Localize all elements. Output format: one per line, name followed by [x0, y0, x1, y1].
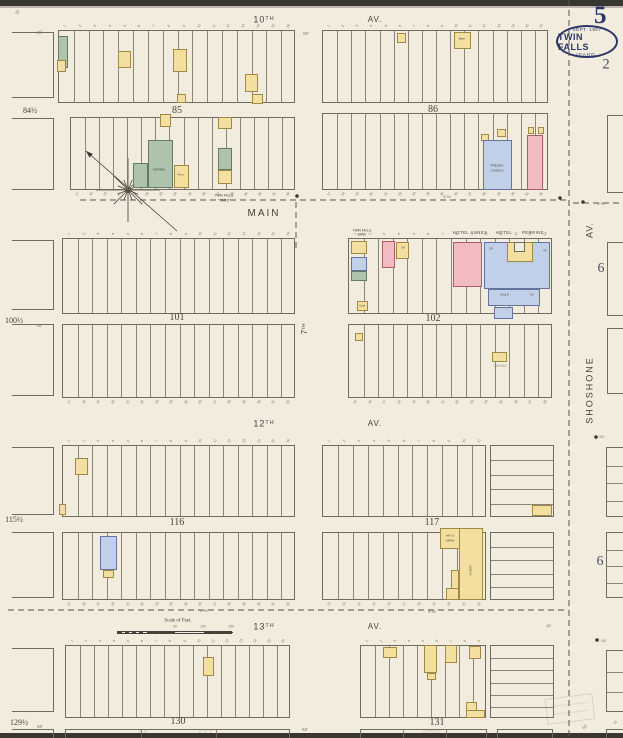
lot-line	[378, 325, 379, 397]
hydrant-dot	[295, 194, 299, 198]
bldg-label-hay: HAY &	[446, 535, 454, 538]
lot-number: 1	[327, 24, 331, 28]
cannery	[133, 163, 148, 188]
scale-bar-segment	[132, 632, 136, 633]
lot-line	[249, 646, 250, 717]
scan-edge-top-shadow	[0, 6, 623, 8]
hydrant-dot	[594, 435, 598, 439]
lot-number: 16	[386, 601, 392, 606]
stamp-city: TWIN FALLS	[558, 32, 616, 52]
lot-line	[121, 533, 122, 599]
right-partial-row1	[607, 115, 623, 193]
street-label-13th-av: AV.	[368, 623, 383, 631]
lot-number: 11	[212, 231, 217, 236]
lot-number: 7	[417, 439, 421, 443]
lot-number: 14	[252, 638, 258, 643]
lot-line	[180, 239, 181, 313]
lot-number: 2	[82, 232, 86, 236]
lot-line	[193, 646, 194, 717]
lot-number: 26	[453, 191, 459, 196]
lot-line	[136, 646, 137, 717]
lot-line	[491, 475, 553, 476]
lot-number: 7	[152, 24, 156, 28]
lot-line	[121, 446, 122, 516]
building	[466, 710, 485, 718]
scale-150: 150	[228, 625, 234, 629]
lot-line	[337, 114, 338, 189]
scale-label: Scale of Feet.	[164, 619, 191, 624]
lot-number: 32	[538, 191, 544, 196]
lot-number: 8	[169, 232, 173, 236]
lot-line	[607, 583, 623, 584]
lot-number: 31	[271, 191, 277, 196]
lot-line	[491, 707, 553, 708]
lot-number: 3	[96, 232, 100, 236]
bldg-label-dining: Din'g R.	[500, 295, 509, 298]
furniture-store	[174, 165, 189, 188]
lot-line	[337, 31, 338, 102]
lot-number: 17	[401, 601, 407, 606]
lot-number: 5	[387, 439, 391, 443]
lot-line	[375, 646, 376, 717]
lot-number: 4	[369, 24, 373, 28]
lot-number: 16	[285, 23, 291, 28]
lot-number: 6	[402, 439, 406, 443]
right-partial-row3b	[606, 532, 623, 598]
lot-line	[509, 325, 510, 397]
block-115h-upper-lots	[12, 447, 54, 515]
lot-number: 27	[212, 601, 218, 606]
lot-number: 7	[441, 232, 445, 236]
building	[177, 94, 186, 103]
bottom-strip-right	[606, 729, 623, 738]
lot-line	[403, 730, 404, 738]
lot-line	[450, 114, 451, 189]
lot-number: 22	[145, 191, 151, 196]
lot-number: 8	[167, 24, 171, 28]
lot-line	[422, 325, 423, 397]
building	[355, 333, 363, 341]
block-number-131: 131	[430, 718, 445, 728]
hotel-perrine-court	[514, 242, 525, 252]
lot-line	[446, 730, 447, 738]
block-100h-upper-lots	[12, 240, 54, 310]
lot-line	[607, 550, 623, 551]
lot-line	[163, 31, 164, 102]
water-main-label: 6''W	[428, 610, 436, 614]
lot-line	[394, 114, 395, 189]
bank-corner-building	[351, 271, 367, 281]
lot-line	[491, 460, 553, 461]
lot-number: 15	[266, 638, 272, 643]
hotel-annex	[453, 242, 482, 287]
lot-line	[491, 683, 553, 684]
lot-line	[192, 31, 193, 102]
lot-line	[223, 533, 224, 599]
block-84h-upper-lots	[12, 32, 54, 98]
lot-number: 18	[340, 191, 346, 196]
lot-number: 5	[421, 639, 425, 643]
lot-number: 24	[168, 601, 174, 606]
lot-line	[165, 239, 166, 313]
lot-number: 21	[131, 191, 137, 196]
lot-number: 14	[510, 23, 516, 28]
lot-number: 17	[67, 601, 73, 606]
lot-number: 2	[82, 439, 86, 443]
lot-line	[252, 239, 253, 313]
lot-number: 24	[425, 191, 431, 196]
lot-number: 8	[168, 639, 172, 643]
lot-line	[378, 239, 379, 313]
lot-number: 17	[67, 399, 73, 404]
lot-number: 18	[416, 601, 422, 606]
lot-line	[364, 325, 365, 397]
stamp-state: IDAHO.	[576, 52, 598, 57]
lot-number: 20	[116, 191, 122, 196]
lot-number: 18	[88, 191, 94, 196]
lot-number: 23	[469, 399, 475, 404]
lot-line	[457, 446, 458, 516]
lot-number: 6	[426, 232, 430, 236]
lot-number: 10	[196, 638, 202, 643]
lot-number: 10	[461, 438, 467, 443]
lot-number: 11	[468, 23, 473, 28]
lot-line	[478, 114, 479, 189]
lot-line	[422, 239, 423, 313]
faint-fragment: E X P	[199, 730, 213, 734]
bldg-label-times: TWIN FALLS	[215, 194, 234, 197]
lot-number: 23	[411, 191, 417, 196]
lot-number: 1	[70, 639, 74, 643]
lot-line	[535, 31, 536, 102]
lot-line	[281, 533, 282, 599]
block-number-117: 117	[425, 518, 440, 528]
lot-line	[417, 646, 418, 717]
lot-number: 26	[201, 191, 207, 196]
lot-number: 20	[425, 399, 431, 404]
lot-number: 22	[455, 399, 461, 404]
lot-number: 3	[382, 232, 386, 236]
lot-number: 28	[542, 399, 548, 404]
lot-number: 7	[449, 639, 453, 643]
lot-line	[238, 446, 239, 516]
lot-line	[165, 325, 166, 397]
lot-line	[164, 646, 165, 717]
block-86-lower-lots	[322, 113, 548, 190]
lot-line	[368, 446, 369, 516]
lot-line	[94, 646, 95, 717]
lot-line	[422, 114, 423, 189]
lot-line	[267, 446, 268, 516]
lot-number: 6	[397, 24, 401, 28]
lot-line	[180, 446, 181, 516]
lot-line	[223, 325, 224, 397]
lot-line	[103, 31, 104, 102]
lot-number: 6	[140, 439, 144, 443]
lot-line	[121, 239, 122, 313]
lot-line	[267, 533, 268, 599]
lot-number: 19	[431, 601, 437, 606]
lot-number: 4	[397, 232, 401, 236]
lot-number: 2	[368, 232, 372, 236]
lot-number: 10	[198, 231, 204, 236]
lot-line	[92, 533, 93, 599]
lot-number: 12	[482, 23, 488, 28]
barn	[454, 32, 471, 49]
lot-line	[493, 31, 494, 102]
lot-number: 29	[243, 191, 249, 196]
scale-bar-segment	[204, 632, 233, 633]
lot-line	[398, 533, 399, 599]
lot-number: 12	[226, 23, 232, 28]
lot-number: 32	[285, 601, 291, 606]
lot-line	[427, 533, 428, 599]
lot-number: 15	[371, 601, 377, 606]
lot-line	[209, 325, 210, 397]
scale-bar-segment	[118, 632, 122, 633]
lot-number: 32	[285, 191, 291, 196]
lot-line	[451, 325, 452, 397]
adjacent-sheet-6a: 6	[598, 262, 605, 276]
lot-number: 28	[227, 601, 233, 606]
lot-number: 21	[440, 399, 446, 404]
lot-number: 21	[461, 601, 467, 606]
bldg-label-off: Off	[489, 249, 492, 252]
lot-number: 17	[74, 191, 80, 196]
lot-number: 20	[110, 399, 116, 404]
hotel-laundry	[494, 307, 513, 319]
dim-60ft: 60'	[582, 724, 589, 730]
coal-shed	[492, 352, 507, 362]
block-number-101: 101	[170, 313, 185, 323]
lot-number: 25	[187, 191, 193, 196]
lot-number: 26	[198, 399, 204, 404]
lot-number: 14	[357, 601, 363, 606]
lot-number: 30	[510, 191, 516, 196]
lot-line	[412, 446, 413, 516]
lot-number: 1	[63, 24, 67, 28]
lot-line	[267, 239, 268, 313]
building	[538, 127, 544, 134]
lot-number: 30	[256, 399, 262, 404]
dim-31: 31	[613, 720, 618, 725]
lot-number: 18	[81, 399, 87, 404]
street-label-10th: 10TH	[253, 16, 274, 25]
lot-number: 1	[67, 439, 71, 443]
lot-line	[436, 239, 437, 313]
building	[245, 74, 258, 92]
lot-number: 29	[496, 191, 502, 196]
lot-line	[107, 239, 108, 313]
lot-line	[222, 31, 223, 102]
lot-line	[353, 533, 354, 599]
lot-number: 12	[513, 231, 519, 236]
hydrant-dot	[595, 638, 599, 642]
lot-line	[607, 501, 623, 502]
lot-line	[252, 446, 253, 516]
street-label-12th-sup: TH	[265, 420, 274, 426]
lot-line	[408, 31, 409, 102]
lot-number: 15	[524, 23, 530, 28]
block-116-upper-lots	[62, 445, 295, 517]
building	[397, 33, 406, 43]
lot-line	[422, 31, 423, 102]
block-100h-lower-lots	[12, 324, 54, 396]
lot-line	[252, 533, 253, 599]
lot-number: 6	[140, 232, 144, 236]
brick-building	[527, 135, 543, 190]
stable	[424, 645, 437, 673]
lot-line	[338, 446, 339, 516]
lot-line	[179, 646, 180, 717]
lot-number: 4	[108, 24, 112, 28]
lot-number: 21	[383, 191, 389, 196]
lot-number: 2	[342, 439, 346, 443]
lot-number: 16	[285, 438, 291, 443]
block-number-85: 85	[172, 106, 182, 116]
lot-line	[607, 692, 623, 693]
bottom-strip-131e	[497, 729, 553, 738]
lot-line	[491, 547, 553, 548]
bldg-label-church: CHURCH	[491, 170, 504, 173]
lot-number: 19	[96, 601, 102, 606]
lot-line	[507, 31, 508, 102]
lot-line	[99, 118, 100, 189]
building	[252, 94, 263, 104]
lot-line	[521, 114, 522, 189]
block-number-115h: 115½	[5, 516, 23, 524]
lot-number: 11	[476, 438, 481, 443]
lot-number: 15	[270, 231, 276, 236]
water-main-label: 6''W	[597, 202, 605, 206]
adjacent-sheet-6b: 6	[597, 555, 604, 569]
lot-number: 30	[257, 191, 263, 196]
scale-50: 50	[173, 625, 177, 629]
lot-number: 16	[538, 23, 544, 28]
lot-number: 31	[524, 191, 530, 196]
lot-number: 4	[111, 232, 115, 236]
lot-number: 9	[440, 24, 444, 28]
lot-line	[393, 325, 394, 397]
lot-line	[353, 446, 354, 516]
lot-number: 5	[126, 639, 130, 643]
lot-number: 24	[484, 399, 490, 404]
block-130-lots	[65, 645, 290, 718]
lot-number: 7	[412, 24, 416, 28]
twin-falls-times	[218, 170, 232, 184]
bottom-strip-left	[12, 729, 54, 738]
lot-line	[148, 31, 149, 102]
lot-number: 9	[182, 639, 186, 643]
lot-number: 14	[256, 231, 262, 236]
lot-number: 19	[96, 399, 102, 404]
block-number-129h: 129½	[10, 719, 28, 727]
lot-number: 4	[111, 439, 115, 443]
lot-number: 21	[125, 601, 131, 606]
bldg-label-coal-shed: Coal Shed	[493, 365, 506, 368]
lot-line	[207, 31, 208, 102]
lot-number: 6	[435, 639, 439, 643]
lot-line	[351, 114, 352, 189]
lot-number: 8	[432, 439, 436, 443]
lot-number: 12	[227, 438, 233, 443]
dim-60ft: 60'	[601, 639, 606, 643]
lot-number: 20	[446, 601, 452, 606]
scale-bar-segment	[139, 632, 143, 633]
lot-line	[133, 31, 134, 102]
lot-line	[380, 114, 381, 189]
lot-number: 17	[382, 399, 388, 404]
lot-number: 5	[122, 24, 126, 28]
building	[382, 241, 395, 268]
lot-line	[194, 446, 195, 516]
lot-line	[113, 118, 114, 189]
lot-number: 19	[411, 399, 417, 404]
lot-number: 29	[241, 399, 247, 404]
bldg-label-kitchen: Kit.	[530, 295, 534, 298]
lot-line	[252, 325, 253, 397]
sanborn-map-sheet: 5 SEPT. 1907 TWIN FALLS IDAHO. 123456789…	[0, 0, 623, 738]
bldg-label-twin-falls-bank: BANK	[358, 233, 367, 236]
publisher-stamp: SEPT. 1907 TWIN FALLS IDAHO.	[556, 25, 618, 58]
bldg-label-times: "TIMES"	[218, 199, 230, 202]
lot-line	[408, 114, 409, 189]
lot-number: 24	[168, 399, 174, 404]
lot-line	[92, 446, 93, 516]
block-115h-lower-lots	[12, 532, 54, 598]
lot-number: 22	[397, 191, 403, 196]
bank-corner-building	[351, 257, 367, 271]
lot-number: 15	[353, 399, 359, 404]
building	[532, 505, 552, 516]
lot-line	[524, 325, 525, 397]
lot-line	[451, 239, 452, 313]
lot-number: 19	[355, 191, 361, 196]
lot-line	[150, 325, 151, 397]
street-label-13th: 13TH	[253, 623, 274, 632]
lot-line	[136, 446, 137, 516]
lot-number: 5	[411, 232, 415, 236]
lot-line	[263, 646, 264, 717]
lot-line	[407, 325, 408, 397]
lot-line	[412, 533, 413, 599]
lot-number: 13	[342, 601, 348, 606]
lot-line	[127, 118, 128, 189]
lot-number: 8	[426, 24, 430, 28]
lot-number: 12	[327, 601, 333, 606]
dim-60ft: 60'	[302, 728, 308, 733]
lot-line	[491, 695, 553, 696]
dim-50ft: 50'	[15, 9, 21, 16]
lot-number: 18	[81, 601, 87, 606]
lot-line	[194, 239, 195, 313]
lot-line	[85, 118, 86, 189]
lot-line	[80, 646, 81, 717]
block-number-100h: 100½	[5, 317, 23, 325]
lot-number: 24	[173, 191, 179, 196]
lot-line	[78, 325, 79, 397]
lot-line	[436, 31, 437, 102]
lot-line	[150, 446, 151, 516]
lot-line	[108, 646, 109, 717]
lot-line	[136, 239, 137, 313]
block-number-84h: 84½	[23, 107, 37, 115]
lot-line	[281, 446, 282, 516]
lot-number: 14	[256, 438, 262, 443]
lot-number: 4	[372, 439, 376, 443]
bldg-label-hotel-annex: HOTEL ANNEX	[453, 231, 488, 235]
lot-number: 27	[212, 399, 218, 404]
